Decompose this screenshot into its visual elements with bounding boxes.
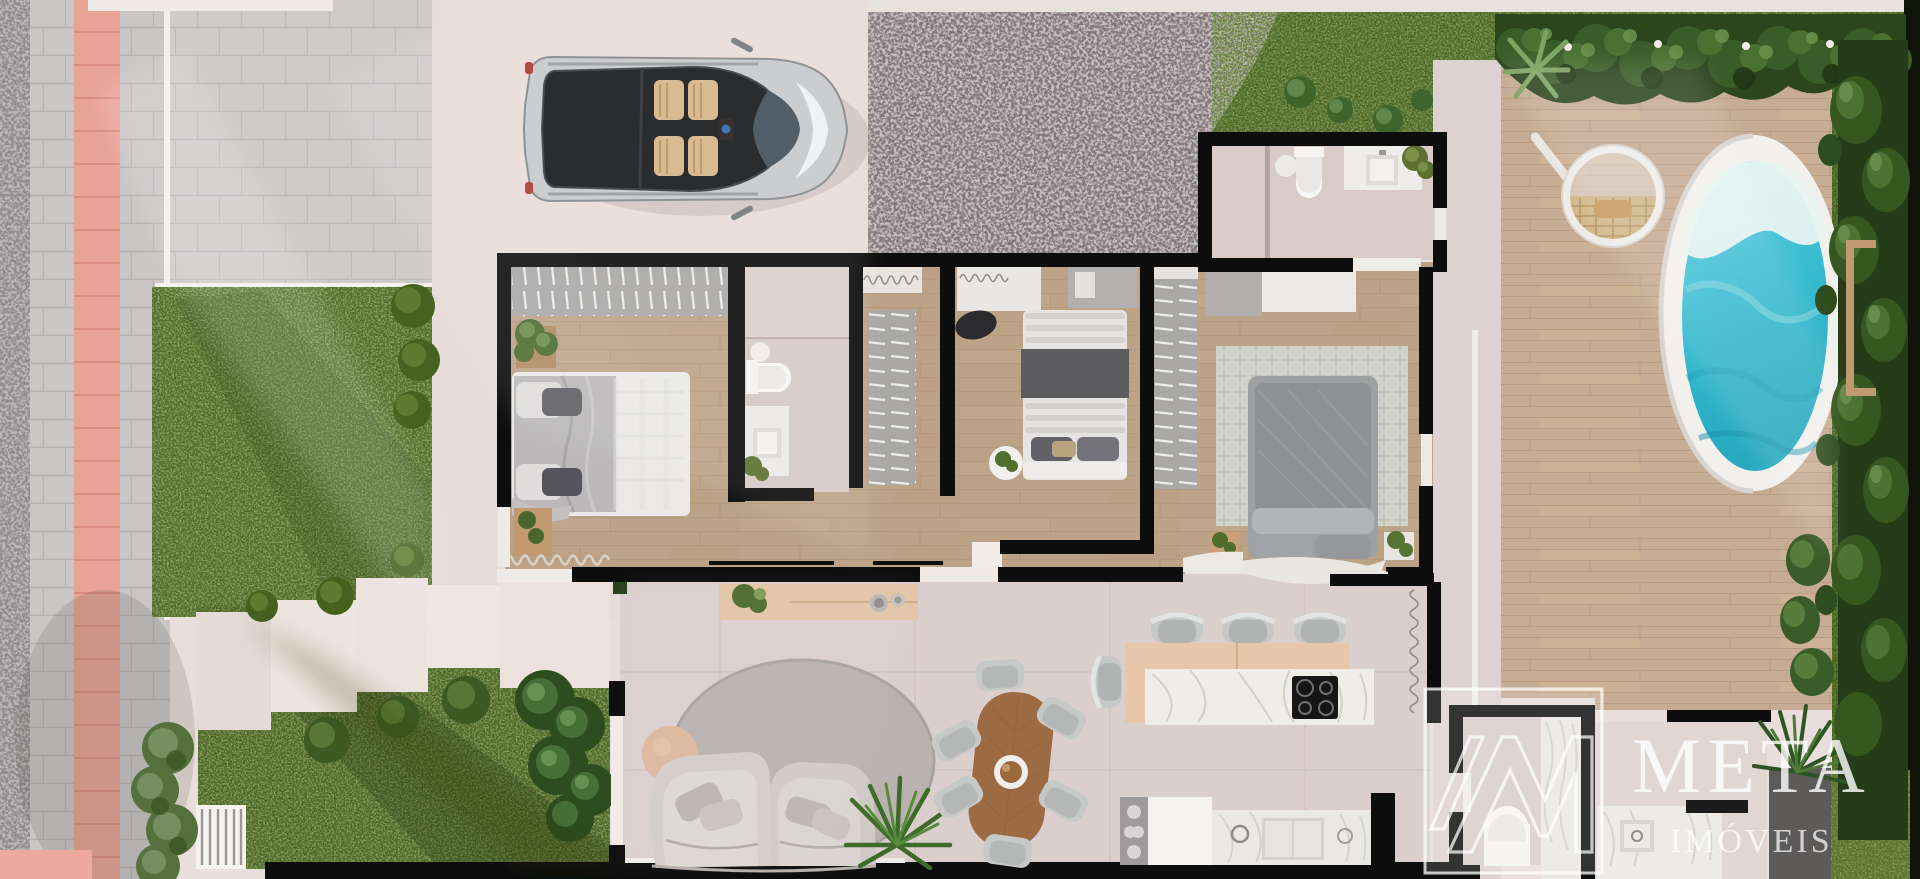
svg-text:META: META — [1632, 722, 1871, 809]
svg-text:IMÓVEIS: IMÓVEIS — [1670, 822, 1833, 860]
